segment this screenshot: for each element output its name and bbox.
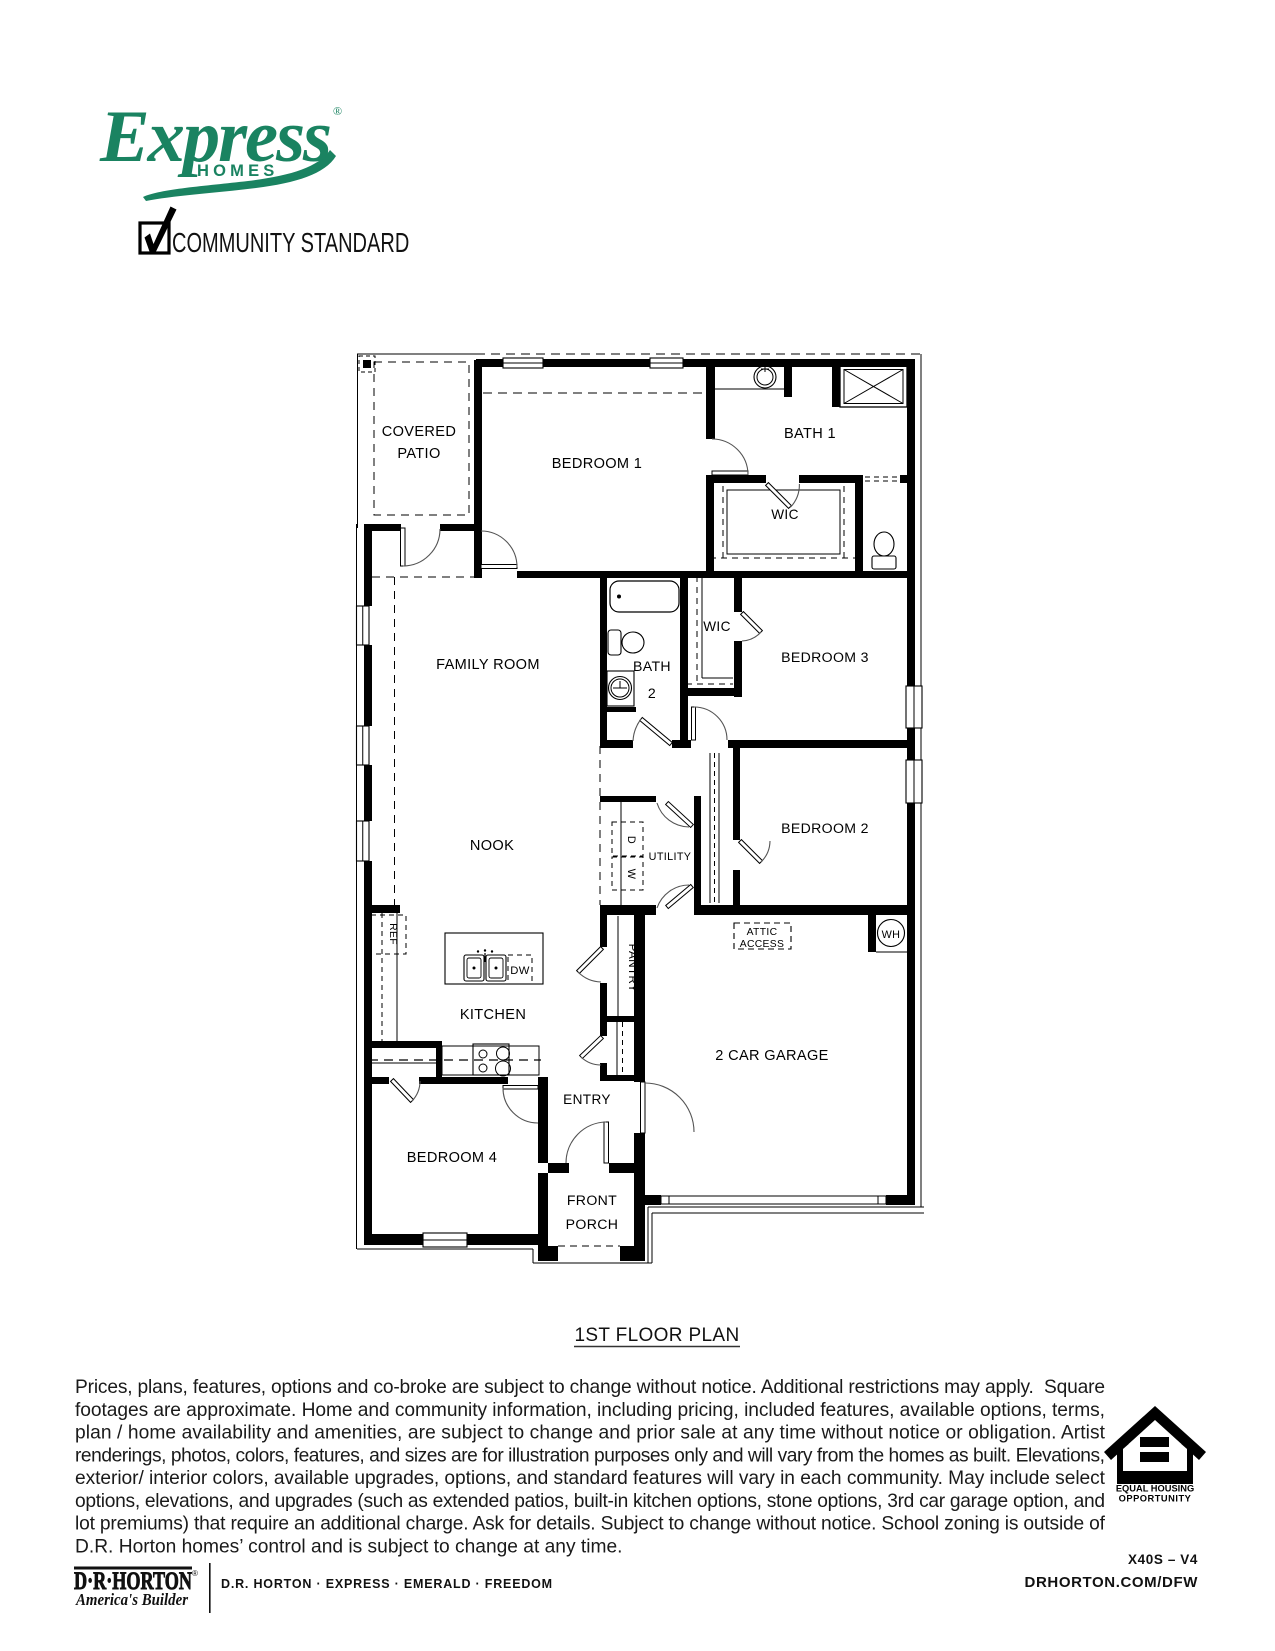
svg-text:ENTRY: ENTRY <box>563 1092 611 1107</box>
svg-text:DRHORTON.COM/DFW: DRHORTON.COM/DFW <box>1025 1574 1199 1591</box>
svg-text:BEDROOM 2: BEDROOM 2 <box>781 820 869 836</box>
svg-text:D.R. HORTON · EXPRESS · EMERAL: D.R. HORTON · EXPRESS · EMERALD · FREEDO… <box>221 1577 553 1591</box>
svg-text:BEDROOM 3: BEDROOM 3 <box>781 649 869 665</box>
svg-text:HOMES: HOMES <box>197 162 279 180</box>
svg-text:options, elevations, and upgra: options, elevations, and upgrades (such … <box>75 1491 1105 1512</box>
svg-text:NOOK: NOOK <box>470 838 514 854</box>
svg-text:REF: REF <box>387 923 398 945</box>
svg-text:1ST FLOOR PLAN: 1ST FLOOR PLAN <box>574 1325 739 1346</box>
svg-text:COVERED: COVERED <box>382 424 456 440</box>
svg-text:WIC: WIC <box>771 507 799 522</box>
svg-text:FRONT: FRONT <box>567 1192 617 1208</box>
svg-text:2: 2 <box>648 685 656 701</box>
svg-text:plan / home availability and a: plan / home availability and amenities, … <box>75 1423 1106 1444</box>
svg-text:lot premiums) that require an: lot premiums) that require an additional… <box>75 1514 1106 1535</box>
svg-text:2 CAR GARAGE: 2 CAR GARAGE <box>715 1048 828 1064</box>
svg-text:footages are approximate. Home: footages are approximate. Home and commu… <box>75 1400 1105 1421</box>
svg-text:D.R. Horton homes’ control and: D.R. Horton homes’ control and is subjec… <box>75 1537 622 1558</box>
svg-text:W: W <box>625 869 637 880</box>
svg-text:BEDROOM 4: BEDROOM 4 <box>407 1150 498 1166</box>
svg-text:PORCH: PORCH <box>566 1216 619 1232</box>
svg-text:PATIO: PATIO <box>397 446 440 462</box>
svg-text:BEDROOM 1: BEDROOM 1 <box>552 456 643 472</box>
svg-text:®: ® <box>333 104 342 118</box>
svg-text:ATTIC: ATTIC <box>747 927 778 938</box>
svg-text:X40S – V4: X40S – V4 <box>1128 1552 1198 1567</box>
svg-text:exterior/ interior colors, ava: exterior/ interior colors, available upg… <box>75 1468 1106 1489</box>
svg-text:WH: WH <box>882 929 901 941</box>
svg-text:renderings, photos, colors, fe: renderings, photos, colors, features, an… <box>75 1446 1105 1467</box>
svg-text:WIC: WIC <box>703 619 731 634</box>
svg-text:KITCHEN: KITCHEN <box>460 1007 526 1023</box>
svg-text:ACCESS: ACCESS <box>740 939 785 950</box>
svg-text:UTILITY: UTILITY <box>649 851 692 863</box>
svg-text:BATH 1: BATH 1 <box>784 426 836 442</box>
svg-text:EQUAL HOUSING: EQUAL HOUSING <box>1116 1484 1194 1494</box>
svg-text:PANTRY: PANTRY <box>626 944 639 993</box>
svg-text:BATH: BATH <box>633 658 671 674</box>
svg-text:DW: DW <box>510 965 529 977</box>
svg-text:OPPORTUNITY: OPPORTUNITY <box>1119 1494 1192 1504</box>
svg-text:Prices, plans, features, optio: Prices, plans, features, options and co-… <box>75 1377 1105 1398</box>
svg-text:America's Builder: America's Builder <box>75 1590 188 1609</box>
svg-text:®: ® <box>192 1569 198 1578</box>
svg-text:FAMILY ROOM: FAMILY ROOM <box>436 657 540 673</box>
svg-text:D: D <box>625 836 637 844</box>
